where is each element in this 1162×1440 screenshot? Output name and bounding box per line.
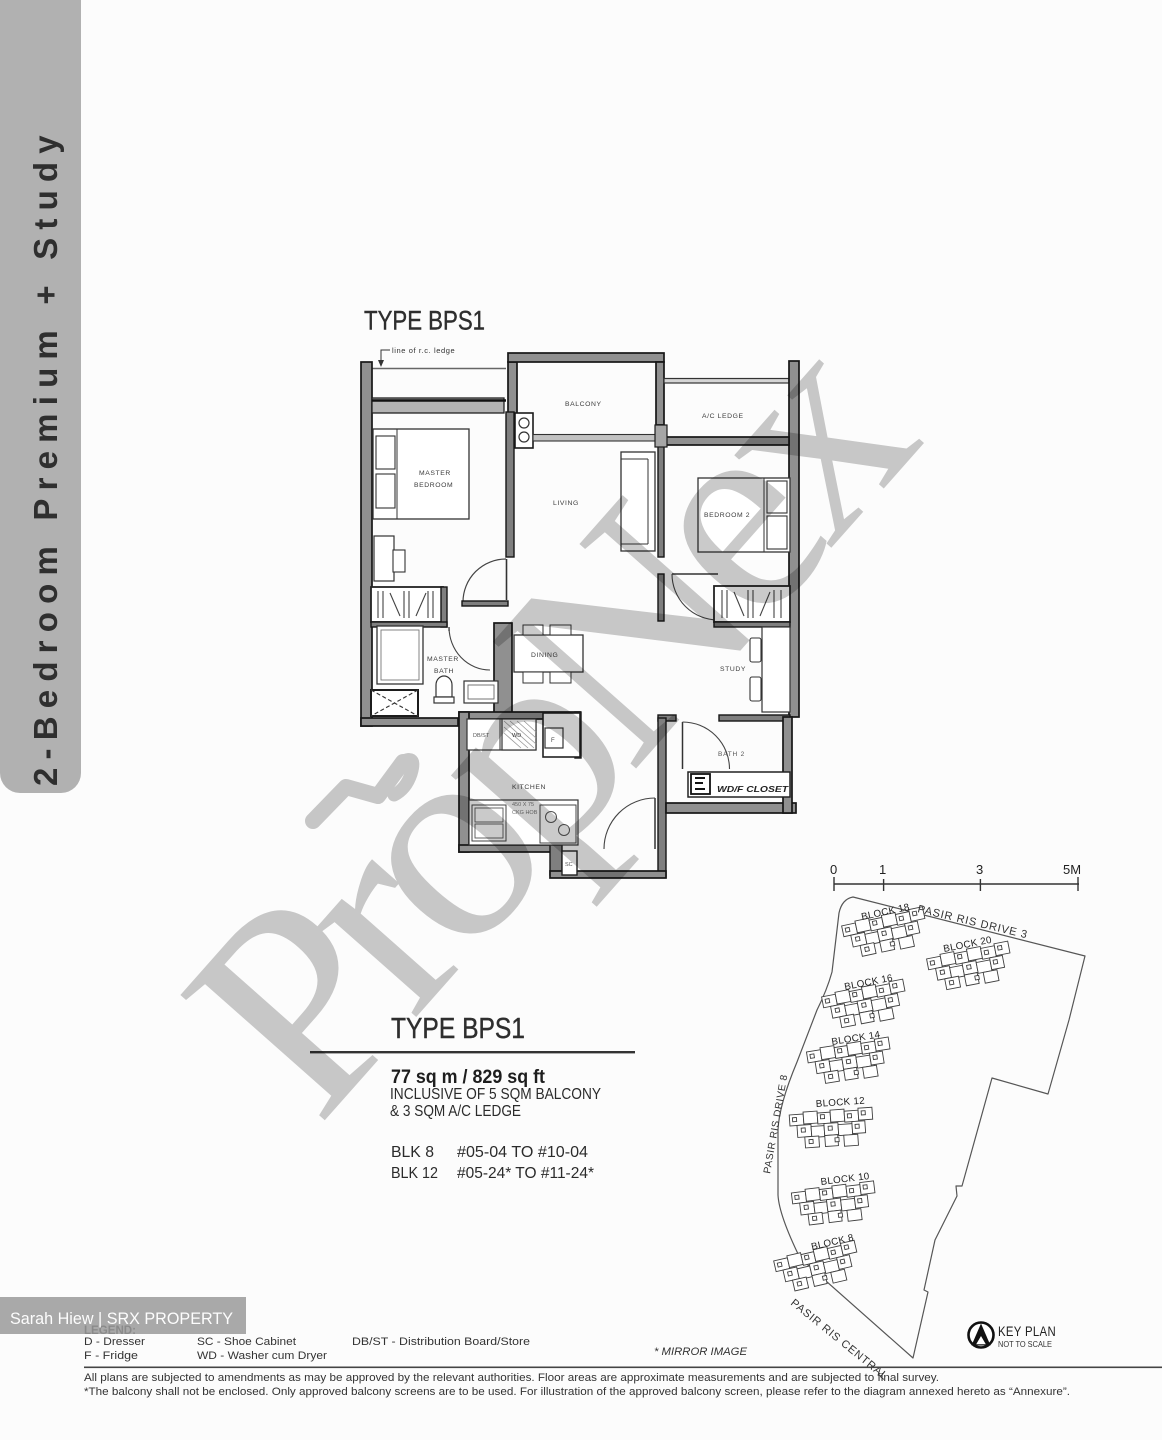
svg-text:Sarah Hiew | SRX PROPERTY: Sarah Hiew | SRX PROPERTY [10,1309,233,1328]
